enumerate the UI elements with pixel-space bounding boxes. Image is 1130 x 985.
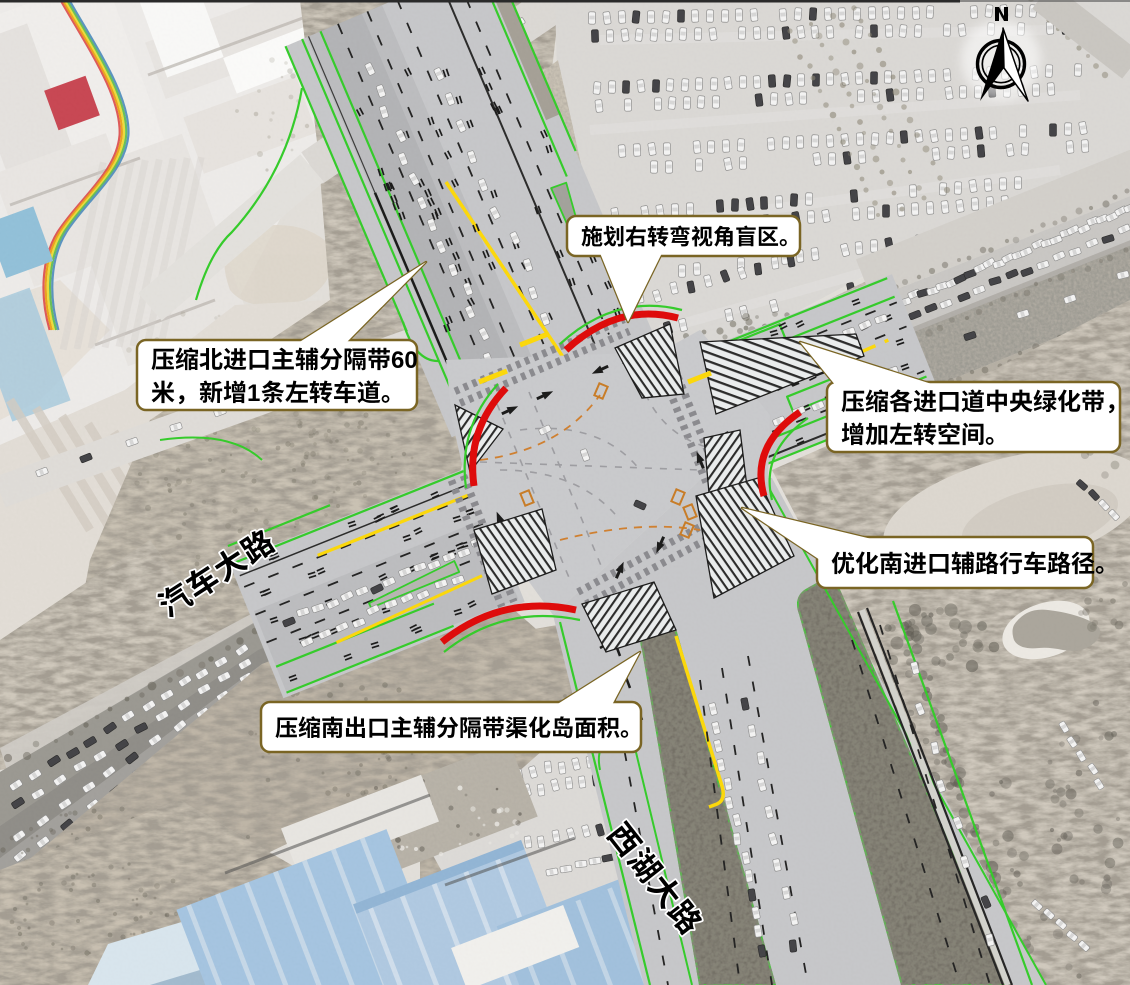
svg-text:60: 60 — [391, 347, 418, 374]
svg-text:1: 1 — [247, 380, 260, 407]
